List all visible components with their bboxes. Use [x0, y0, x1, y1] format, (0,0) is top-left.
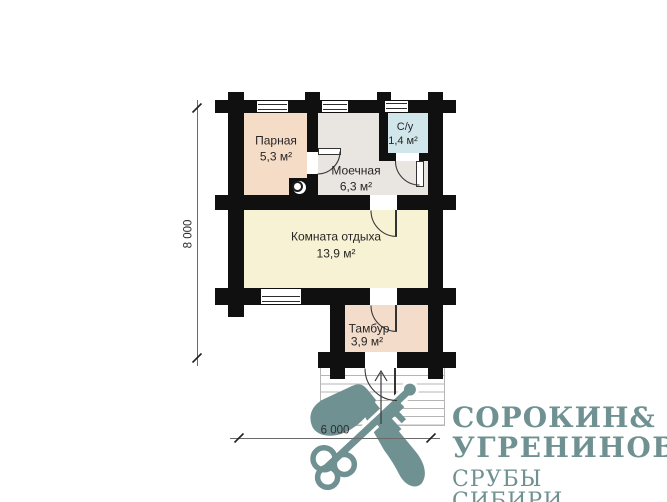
logo-ampersand: &	[630, 404, 656, 432]
room-label-komnata: Комната отдыха	[291, 230, 381, 243]
stove-icon	[289, 178, 309, 197]
log-end	[305, 92, 320, 100]
logo-tagline: СРУБЫ СИБИРИ	[452, 469, 644, 502]
room-area-komnata: 13,9 м²	[317, 247, 356, 260]
log-end	[428, 92, 443, 100]
room-area-parnaya: 5,3 м²	[260, 150, 292, 163]
room-label-su: С/у	[397, 121, 414, 133]
wall-right	[428, 100, 443, 368]
door-opening-tambur	[370, 288, 397, 305]
log-end	[443, 195, 456, 210]
log-end	[215, 195, 228, 210]
dimension-label-horizontal: 6 000	[321, 425, 350, 438]
door-opening-parnaya	[307, 152, 318, 174]
room-area-tambur: 3,9 м²	[351, 335, 383, 348]
door-leaf	[395, 210, 397, 236]
log-end	[443, 352, 456, 368]
door-opening-entrance	[365, 352, 397, 368]
log-end	[443, 288, 456, 305]
logo-brand-word-2: УГРЕНИНОВ	[452, 434, 644, 462]
window	[257, 101, 288, 112]
log-end	[443, 100, 456, 113]
door-leaf	[395, 305, 397, 331]
window	[322, 101, 348, 112]
window	[385, 101, 408, 112]
room-label-moechnaya: Моечная	[331, 164, 380, 177]
log-end	[228, 305, 244, 317]
door-opening-su	[396, 153, 419, 161]
room-area-moechnaya: 6,3 м²	[340, 180, 372, 193]
logo-brand-word-1: СОРОКИН	[452, 404, 630, 432]
room-area-su: 1,4 м²	[388, 135, 418, 147]
logo: СОРОКИН & УГРЕНИНОВ СРУБЫ СИБИРИ	[452, 404, 644, 502]
log-end	[215, 288, 228, 305]
logo-line-1: СОРОКИН &	[452, 404, 644, 432]
log-end	[318, 352, 330, 368]
window	[261, 289, 301, 304]
door-leaf	[318, 148, 341, 155]
log-end	[228, 92, 244, 100]
dimension-label-vertical: 8 000	[183, 220, 196, 249]
door-opening-komnata	[370, 195, 397, 210]
door-leaf	[416, 161, 424, 187]
dimension-line-vertical	[197, 100, 198, 366]
log-end	[215, 100, 228, 113]
floor-plan-page: Парная 5,3 м² Моечная 6,3 м² С/у 1,4 м² …	[0, 0, 667, 502]
dimension-line-horizontal	[230, 438, 440, 439]
wall-middle	[228, 195, 443, 210]
log-end	[377, 92, 391, 100]
room-label-parnaya: Парная	[255, 134, 297, 147]
